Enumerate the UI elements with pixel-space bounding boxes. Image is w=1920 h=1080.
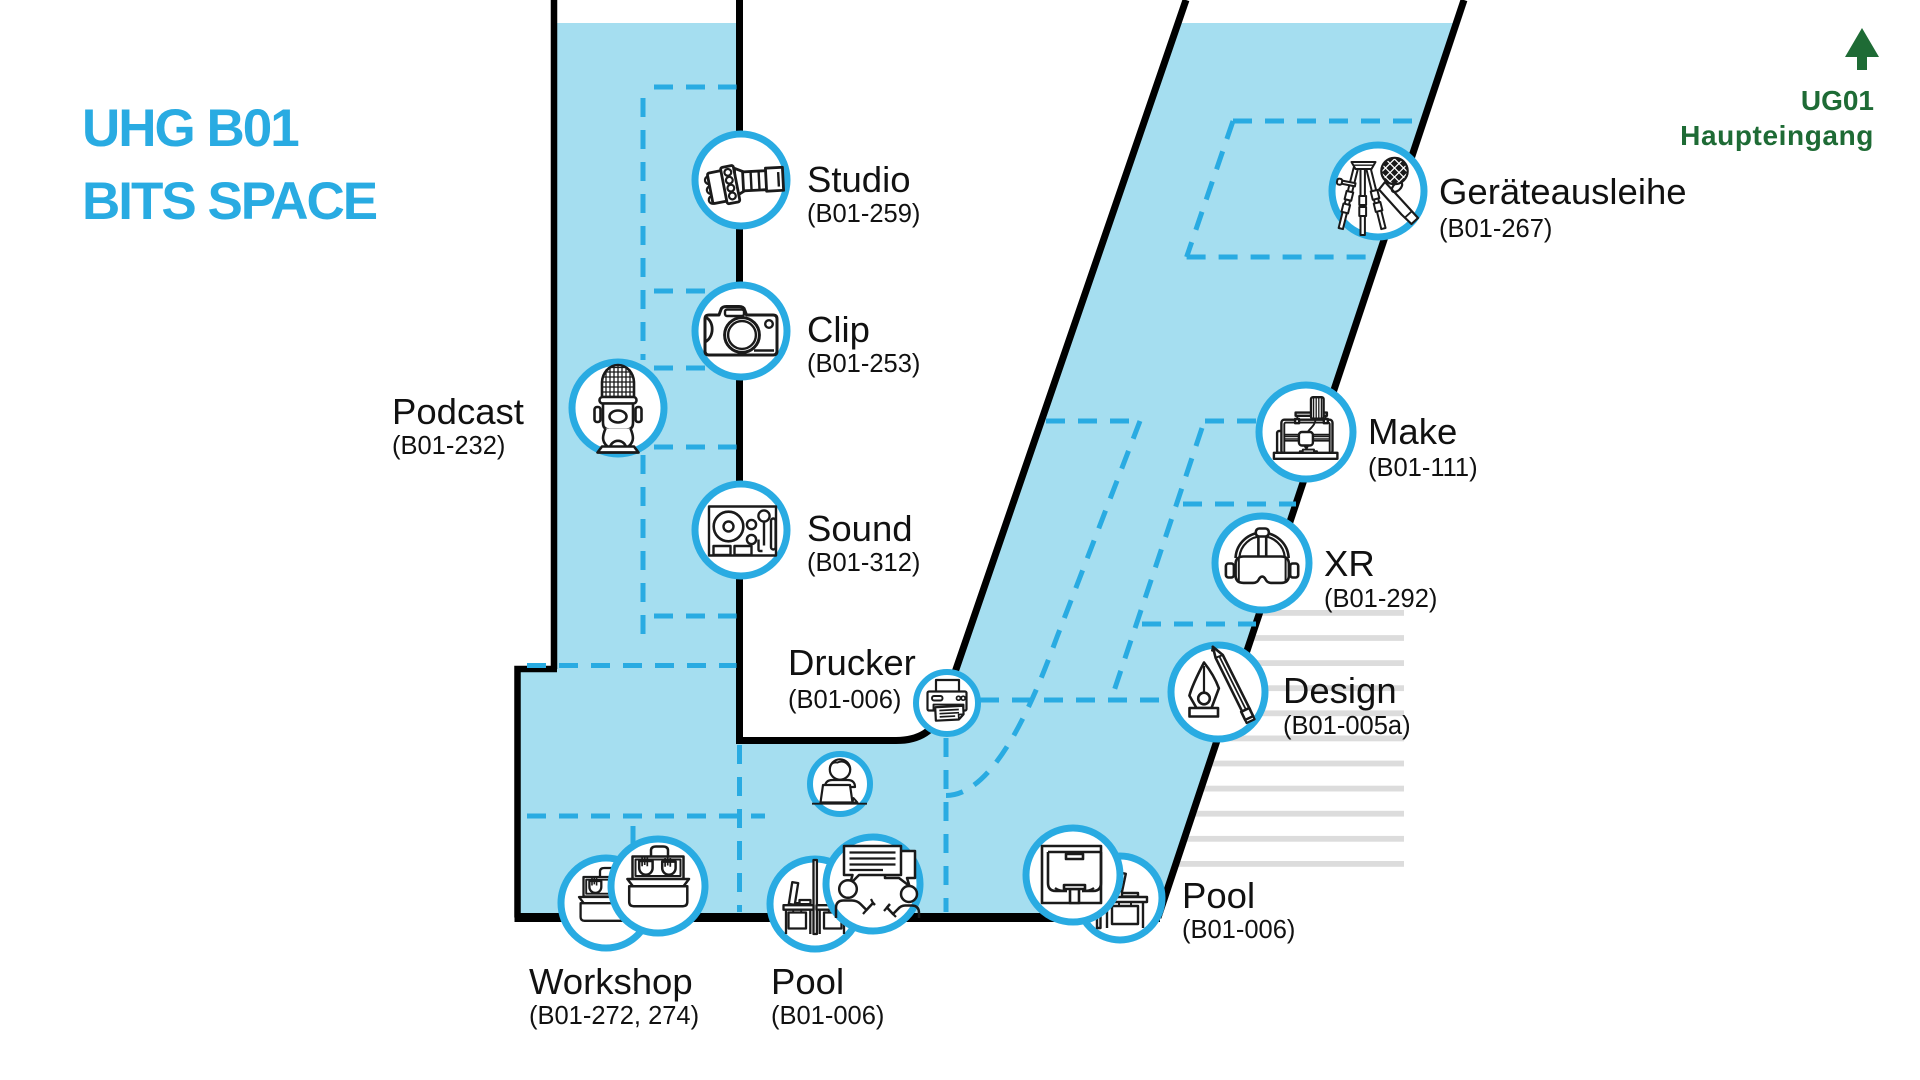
svg-text:UG01: UG01: [1801, 85, 1874, 116]
svg-text:Geräteausleihe: Geräteausleihe: [1439, 171, 1687, 212]
svg-text:(B01-312): (B01-312): [807, 549, 920, 577]
svg-text:(B01-232): (B01-232): [392, 432, 505, 460]
svg-text:(B01-006): (B01-006): [771, 1002, 884, 1030]
svg-text:Make: Make: [1368, 411, 1457, 452]
svg-text:Workshop: Workshop: [529, 961, 693, 1002]
svg-text:Drucker: Drucker: [788, 642, 916, 683]
svg-text:Design: Design: [1283, 670, 1397, 711]
svg-text:Clip: Clip: [807, 309, 870, 350]
svg-text:UHG B01: UHG B01: [82, 99, 298, 158]
svg-text:(B01-292): (B01-292): [1324, 585, 1437, 613]
svg-text:(B01-253): (B01-253): [807, 350, 920, 378]
svg-text:(B01-259): (B01-259): [807, 200, 920, 228]
svg-text:XR: XR: [1324, 543, 1375, 584]
svg-text:Podcast: Podcast: [392, 391, 524, 432]
svg-text:Sound: Sound: [807, 508, 913, 549]
svg-text:(B01-267): (B01-267): [1439, 215, 1552, 243]
svg-text:Pool: Pool: [1182, 875, 1255, 916]
svg-text:(B01-005a): (B01-005a): [1283, 712, 1411, 740]
svg-text:Haupteingang: Haupteingang: [1680, 120, 1874, 151]
svg-text:(B01-006): (B01-006): [1182, 916, 1295, 944]
svg-text:Studio: Studio: [807, 159, 911, 200]
svg-text:BITS SPACE: BITS SPACE: [82, 172, 377, 231]
svg-text:Pool: Pool: [771, 961, 844, 1002]
svg-text:(B01-006): (B01-006): [788, 686, 901, 714]
svg-text:(B01-111): (B01-111): [1368, 454, 1478, 482]
svg-text:(B01-272, 274): (B01-272, 274): [529, 1002, 699, 1030]
